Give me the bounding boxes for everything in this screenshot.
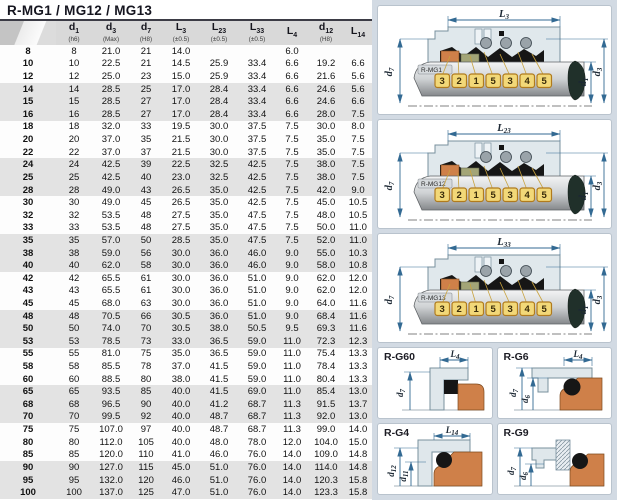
table-cell: 8 <box>0 45 56 58</box>
table-cell: 38.0 <box>308 171 344 184</box>
table-cell <box>200 45 238 58</box>
table-cell: 72.3 <box>308 335 344 348</box>
table-cell: 9.0 <box>276 247 308 260</box>
table-cell: 114.0 <box>308 461 344 474</box>
table-row: 484870.56630.536.051.09.068.411.6 <box>0 310 372 323</box>
table-cell: 75.4 <box>308 348 344 361</box>
table-cell: 9.0 <box>276 272 308 285</box>
table-cell: 68.0 <box>92 297 130 310</box>
column-header: L14 <box>344 21 372 45</box>
table-cell: 35.0 <box>200 209 238 222</box>
table-cell: 30.0 <box>200 133 238 146</box>
table-cell: 58 <box>56 360 92 373</box>
table-cell: 41.5 <box>200 373 238 386</box>
table-row: 202037.03521.530.037.57.535.07.5 <box>0 133 372 146</box>
table-cell: 6.0 <box>276 45 308 58</box>
table-cell: 48.0 <box>308 209 344 222</box>
table-cell: 33.4 <box>238 108 276 121</box>
table-cell: 58 <box>0 360 56 373</box>
table-cell: 66 <box>130 310 162 323</box>
table-cell: 30 <box>56 196 92 209</box>
table-row: 222237.03721.530.037.57.535.07.5 <box>0 146 372 159</box>
table-row: 454568.06330.036.051.09.064.011.6 <box>0 297 372 310</box>
table-cell: 81.0 <box>92 348 130 361</box>
dim-label-l14: L14 <box>445 425 459 437</box>
table-cell: 100 <box>0 486 56 499</box>
table-cell: 37.5 <box>238 121 276 134</box>
table-cell: 50 <box>130 234 162 247</box>
part-number: 4 <box>525 190 531 201</box>
detail-diagram-rg9: R-G9 d7 d6 <box>497 423 613 495</box>
table-cell: 11.6 <box>344 297 372 310</box>
seal-diagram-rmg12: R-MG12 3215345 L23 d7 d1 d3 <box>377 119 612 229</box>
table-cell: 40 <box>0 259 56 272</box>
table-cell: 30.0 <box>162 247 200 260</box>
table-cell: 13.3 <box>344 373 372 386</box>
table-cell: 20 <box>56 133 92 146</box>
table-cell: 9.0 <box>344 184 372 197</box>
table-cell: 65 <box>0 385 56 398</box>
table-cell: 12 <box>0 70 56 83</box>
table-cell: 51.0 <box>238 285 276 298</box>
table-row: 323253.54827.535.047.57.548.010.5 <box>0 209 372 222</box>
seat-variants-grid: R-G60 L4 d7 R-G6 <box>377 347 612 495</box>
table-cell: 78.5 <box>92 335 130 348</box>
rg9-cross-section-svg: d7 d6 <box>498 424 611 492</box>
table-cell: 61 <box>130 285 162 298</box>
dim-label-d7: d7 <box>508 389 520 398</box>
column-header: d12(H8) <box>308 21 344 45</box>
table-cell: 7.5 <box>344 171 372 184</box>
table-cell: 43 <box>56 285 92 298</box>
table-cell: 45 <box>0 297 56 310</box>
table-cell: 13.7 <box>344 398 372 411</box>
table-cell: 35.0 <box>200 222 238 235</box>
table-cell: 43 <box>130 184 162 197</box>
table-row: 424265.56130.036.051.09.062.012.0 <box>0 272 372 285</box>
table-row: 141428.52517.028.433.46.624.65.6 <box>0 83 372 96</box>
table-cell: 33 <box>130 121 162 134</box>
table-row: 707099.59240.048.768.711.392.013.0 <box>0 411 372 424</box>
diagram-label: R-MG12 <box>421 181 446 188</box>
table-cell: 36.0 <box>200 285 238 298</box>
table-cell: 59.0 <box>238 360 276 373</box>
table-cell: 12 <box>56 70 92 83</box>
table-cell: 22 <box>56 146 92 159</box>
table-cell: 26.5 <box>162 196 200 209</box>
table-cell: 40.0 <box>162 423 200 436</box>
table-cell: 53.5 <box>92 209 130 222</box>
table-cell: 23.0 <box>162 171 200 184</box>
table-cell: 28.4 <box>200 95 238 108</box>
table-cell: 75 <box>56 423 92 436</box>
table-row: 101022.52114.525.933.46.619.26.6 <box>0 58 372 71</box>
table-cell: 28 <box>56 184 92 197</box>
table-cell: 35 <box>56 234 92 247</box>
rg4-cross-section-svg: L14 d12 d11 <box>378 424 491 492</box>
table-cell: 28.4 <box>200 83 238 96</box>
part-number: 2 <box>457 304 462 315</box>
table-cell: 42 <box>56 272 92 285</box>
table-cell: 30.5 <box>162 322 200 335</box>
detail-diagram-rg4: R-G4 L14 d12 d11 <box>377 423 493 495</box>
table-cell: 14.0 <box>276 474 308 487</box>
table-cell: 48.7 <box>200 411 238 424</box>
table-cell: 38 <box>56 247 92 260</box>
set-screw-dot <box>499 31 504 36</box>
table-cell: 23 <box>130 70 162 83</box>
table-cell: 40 <box>56 259 92 272</box>
table-cell: 42.5 <box>238 196 276 209</box>
table-cell: 59.0 <box>92 247 130 260</box>
table-cell: 51.0 <box>238 310 276 323</box>
table-cell <box>308 45 344 58</box>
table-cell: 47.5 <box>238 234 276 247</box>
table-cell: 60 <box>56 373 92 386</box>
table-cell: 27.5 <box>162 209 200 222</box>
table-cell: 92.0 <box>308 411 344 424</box>
table-cell: 35 <box>130 133 162 146</box>
table-cell: 91.5 <box>308 398 344 411</box>
table-cell: 59.0 <box>238 348 276 361</box>
part-number: 5 <box>542 190 548 201</box>
table-cell: 17.0 <box>162 95 200 108</box>
table-cell: 7.5 <box>276 146 308 159</box>
table-cell: 96.5 <box>92 398 130 411</box>
table-row: 333353.54827.535.047.57.550.011.0 <box>0 222 372 235</box>
table-cell: 7.5 <box>344 133 372 146</box>
table-cell: 48.7 <box>200 423 238 436</box>
part-number: 3 <box>440 76 445 87</box>
table-cell: 73 <box>130 335 162 348</box>
table-cell: 40.0 <box>162 411 200 424</box>
table-cell: 40.0 <box>162 398 200 411</box>
table-cell: 6.6 <box>344 58 372 71</box>
rg6-cross-section-svg: L4 d7 d6 <box>498 348 611 416</box>
table-cell: 48 <box>56 310 92 323</box>
table-cell: 21 <box>130 45 162 58</box>
part-number: 5 <box>542 76 548 87</box>
table-cell: 37.0 <box>162 360 200 373</box>
table-cell: 42.5 <box>238 158 276 171</box>
table-cell: 22.5 <box>92 58 130 71</box>
table-cell: 37.5 <box>238 146 276 159</box>
table-cell: 105 <box>130 436 162 449</box>
table-cell: 85.4 <box>308 385 344 398</box>
table-row: 686896.59040.041.268.711.391.513.7 <box>0 398 372 411</box>
part-number: 1 <box>474 76 480 87</box>
table-cell: 33.4 <box>238 70 276 83</box>
table-cell: 38.0 <box>308 158 344 171</box>
table-cell: 22.5 <box>162 158 200 171</box>
table-cell: 37 <box>130 146 162 159</box>
table-cell: 30.5 <box>162 310 200 323</box>
table-cell: 50.0 <box>308 222 344 235</box>
table-cell: 68.7 <box>238 398 276 411</box>
table-cell: 27 <box>130 95 162 108</box>
table-cell: 85 <box>0 449 56 462</box>
table-cell: 46.0 <box>238 259 276 272</box>
table-cell: 51.0 <box>200 461 238 474</box>
table-cell: 65 <box>56 385 92 398</box>
table-cell: 19.2 <box>308 58 344 71</box>
table-cell: 35.0 <box>308 133 344 146</box>
table-cell: 7.5 <box>276 133 308 146</box>
table-cell: 120.0 <box>92 449 130 462</box>
table-row: 353557.05028.535.047.57.552.011.0 <box>0 234 372 247</box>
dim-label-d7: d7 <box>384 181 396 190</box>
table-cell: 36.0 <box>200 272 238 285</box>
table-cell: 62.0 <box>308 285 344 298</box>
table-cell: 32 <box>56 209 92 222</box>
seal-cross-section-svg: R-MG1 3215345 L3 d7 d1 d3 <box>378 6 611 114</box>
table-row: 8585120.011041.046.076.014.0109.014.8 <box>0 449 372 462</box>
column-header: L23(±0.5) <box>200 21 238 45</box>
table-cell: 17.0 <box>162 108 200 121</box>
table-cell: 70.5 <box>92 310 130 323</box>
table-cell: 78.0 <box>238 436 276 449</box>
table-cell: 7.5 <box>276 184 308 197</box>
table-cell: 65.5 <box>92 285 130 298</box>
table-cell: 11.0 <box>276 385 308 398</box>
part-number: 2 <box>457 76 462 87</box>
table-cell: 5.6 <box>344 70 372 83</box>
table-cell: 69.0 <box>238 385 276 398</box>
table-cell: 95 <box>0 474 56 487</box>
table-cell: 11.0 <box>276 360 308 373</box>
table-cell: 41.0 <box>162 449 200 462</box>
detail-diagram-rg6: R-G6 L4 d7 d6 <box>497 347 613 419</box>
table-cell: 58 <box>130 259 162 272</box>
table-cell: 15.8 <box>344 474 372 487</box>
table-cell: 16 <box>56 108 92 121</box>
table-cell: 68.4 <box>308 310 344 323</box>
table-cell: 74.0 <box>92 322 130 335</box>
part-number: 1 <box>474 190 480 201</box>
table-cell: 50.5 <box>238 322 276 335</box>
table-cell: 28.0 <box>308 108 344 121</box>
table-cell: 47.0 <box>162 486 200 499</box>
table-cell: 11.0 <box>344 234 372 247</box>
table-row: 585885.57837.041.559.011.078.413.3 <box>0 360 372 373</box>
table-cell: 24.6 <box>308 95 344 108</box>
dim-label-d3: d3 <box>592 67 604 76</box>
dim-label-d7: d7 <box>395 389 407 398</box>
table-cell: 90 <box>130 398 162 411</box>
table-cell: 25 <box>130 83 162 96</box>
table-cell: 7.5 <box>276 158 308 171</box>
part-number: 4 <box>525 76 531 87</box>
detail-diagram-rg60: R-G60 L4 d7 <box>377 347 493 419</box>
table-cell: 46.0 <box>162 474 200 487</box>
table-cell: 109.0 <box>308 449 344 462</box>
table-cell: 70 <box>130 322 162 335</box>
table-row: 535378.57333.036.559.011.072.312.3 <box>0 335 372 348</box>
diagram-label: R-MG1 <box>421 67 442 74</box>
table-cell: 19.5 <box>162 121 200 134</box>
table-cell: 32 <box>0 209 56 222</box>
table-row: 303049.04526.535.042.57.545.010.5 <box>0 196 372 209</box>
part-number: 3 <box>440 190 445 201</box>
table-cell: 18 <box>0 121 56 134</box>
table-cell: 68 <box>0 398 56 411</box>
dim-label-l4: L4 <box>450 349 461 361</box>
table-cell: 38.0 <box>162 373 200 386</box>
table-cell: 6.6 <box>276 83 308 96</box>
table-cell: 68.7 <box>238 423 276 436</box>
table-header: d1(h6)d3(Max)d7(H8)L3(±0.5)L23(±0.5)L33(… <box>0 21 372 45</box>
table-cell: 25.9 <box>200 70 238 83</box>
table-cell: 7.5 <box>344 146 372 159</box>
table-cell: 62.0 <box>92 259 130 272</box>
o-ring <box>572 453 588 469</box>
table-cell: 15 <box>56 95 92 108</box>
table-cell: 64.0 <box>308 297 344 310</box>
table-cell: 32.5 <box>200 158 238 171</box>
dim-label-d7: d7 <box>384 295 396 304</box>
dimension-table-panel: R-MG1 / MG12 / MG13 d1(h6)d3(Max)d7(H8)L… <box>0 0 372 500</box>
catalog-page: R-MG1 / MG12 / MG13 d1(h6)d3(Max)d7(H8)L… <box>0 0 617 500</box>
table-cell: 48 <box>130 209 162 222</box>
table-row: 242442.53922.532.542.57.538.07.5 <box>0 158 372 171</box>
table-cell: 16 <box>0 108 56 121</box>
table-cell: 39 <box>130 158 162 171</box>
table-cell <box>344 45 372 58</box>
table-cell: 12.0 <box>344 272 372 285</box>
table-cell: 11.3 <box>276 411 308 424</box>
table-cell: 26.5 <box>162 184 200 197</box>
table-cell: 97 <box>130 423 162 436</box>
table-cell: 90 <box>56 461 92 474</box>
seal-cross-section-svg: R-MG12 3215345 L23 d7 d1 d3 <box>378 120 611 228</box>
table-row: 555581.07535.036.559.011.075.413.3 <box>0 348 372 361</box>
table-cell: 48 <box>0 310 56 323</box>
table-cell: 42.0 <box>308 184 344 197</box>
table-cell: 59.0 <box>238 373 276 386</box>
table-cell: 33.4 <box>238 58 276 71</box>
part-number: 3 <box>508 190 513 201</box>
table-cell: 51.0 <box>200 474 238 487</box>
table-cell: 35.0 <box>308 146 344 159</box>
table-cell: 28.5 <box>92 108 130 121</box>
table-cell: 51.0 <box>238 297 276 310</box>
table-cell: 35.0 <box>200 196 238 209</box>
table-cell: 59.0 <box>238 335 276 348</box>
dim-label-d7: d7 <box>506 467 518 476</box>
table-cell: 24.6 <box>308 83 344 96</box>
dim-label-top: L3 <box>498 9 509 21</box>
table-cell: 55 <box>0 348 56 361</box>
table-cell: 99.0 <box>308 423 344 436</box>
table-cell: 43 <box>0 285 56 298</box>
table-cell: 25.9 <box>200 58 238 71</box>
table-row: 282849.04326.535.042.57.542.09.0 <box>0 184 372 197</box>
table-cell: 51.0 <box>238 272 276 285</box>
table-cell: 76.0 <box>238 474 276 487</box>
table-row: 151528.52717.028.433.46.624.66.6 <box>0 95 372 108</box>
table-cell: 45.0 <box>308 196 344 209</box>
table-row: 252542.54023.032.542.57.538.07.5 <box>0 171 372 184</box>
table-cell: 46.0 <box>238 247 276 260</box>
table-cell: 45 <box>130 196 162 209</box>
table-cell: 95 <box>56 474 92 487</box>
table-cell: 80.4 <box>308 373 344 386</box>
table-cell: 107.0 <box>92 423 130 436</box>
table-cell: 21.5 <box>162 146 200 159</box>
table-cell: 53 <box>0 335 56 348</box>
table-row: 181832.03319.530.037.57.530.08.0 <box>0 121 372 134</box>
table-cell: 27.5 <box>162 222 200 235</box>
table-cell: 30.0 <box>162 297 200 310</box>
table-cell: 24 <box>0 158 56 171</box>
table-cell: 75 <box>0 423 56 436</box>
table-cell: 76.0 <box>238 449 276 462</box>
table-cell: 33.4 <box>238 95 276 108</box>
table-cell: 47.5 <box>238 209 276 222</box>
part-number: 1 <box>474 304 480 315</box>
dim-label-d7: d7 <box>384 67 396 76</box>
table-cell: 80 <box>130 373 162 386</box>
table-cell: 7.5 <box>276 222 308 235</box>
table-cell: 28.5 <box>162 234 200 247</box>
table-cell: 42.5 <box>92 171 130 184</box>
table-cell: 35 <box>0 234 56 247</box>
table-cell: 110 <box>130 449 162 462</box>
table-cell: 32.5 <box>200 171 238 184</box>
table-cell: 15.0 <box>344 436 372 449</box>
table-cell: 36.0 <box>200 247 238 260</box>
table-cell: 28.5 <box>92 95 130 108</box>
table-cell: 21.0 <box>92 45 130 58</box>
part-number: 5 <box>491 76 497 87</box>
table-row: 8821.02114.06.0 <box>0 45 372 58</box>
table-row: 100100137.012547.051.076.014.0123.315.8 <box>0 486 372 499</box>
table-cell: 55 <box>56 348 92 361</box>
table-cell: 76.0 <box>238 461 276 474</box>
table-cell: 14.0 <box>276 461 308 474</box>
table-cell: 12.3 <box>344 335 372 348</box>
part-number: 4 <box>525 304 531 315</box>
part-number: 3 <box>508 304 513 315</box>
table-cell: 37.0 <box>92 146 130 159</box>
seal-diagram-rmg1: R-MG1 3215345 L3 d7 d1 d3 <box>377 5 612 115</box>
clamp-ring-hatched <box>556 440 570 470</box>
table-cell: 30.0 <box>200 146 238 159</box>
table-cell: 13.0 <box>344 411 372 424</box>
table-cell: 55.0 <box>308 247 344 260</box>
table-cell: 104.0 <box>308 436 344 449</box>
table-row: 434365.56130.036.051.09.062.012.0 <box>0 285 372 298</box>
table-cell: 36.0 <box>200 310 238 323</box>
table-cell: 28 <box>0 184 56 197</box>
table-cell: 30.0 <box>200 121 238 134</box>
table-cell: 36.0 <box>200 297 238 310</box>
table-cell: 100 <box>56 486 92 499</box>
table-cell: 22 <box>0 146 56 159</box>
table-cell: 65.5 <box>92 272 130 285</box>
table-cell: 21.5 <box>162 133 200 146</box>
table-cell: 30.0 <box>162 259 200 272</box>
table-cell: 42.5 <box>238 171 276 184</box>
table-cell: 20 <box>0 133 56 146</box>
table-cell: 41.2 <box>200 398 238 411</box>
table-cell: 9.0 <box>276 259 308 272</box>
set-screw-dot <box>499 145 504 150</box>
table-cell: 52.0 <box>308 234 344 247</box>
table-cell: 9.0 <box>276 310 308 323</box>
o-ring <box>563 379 580 396</box>
table-cell: 115 <box>130 461 162 474</box>
